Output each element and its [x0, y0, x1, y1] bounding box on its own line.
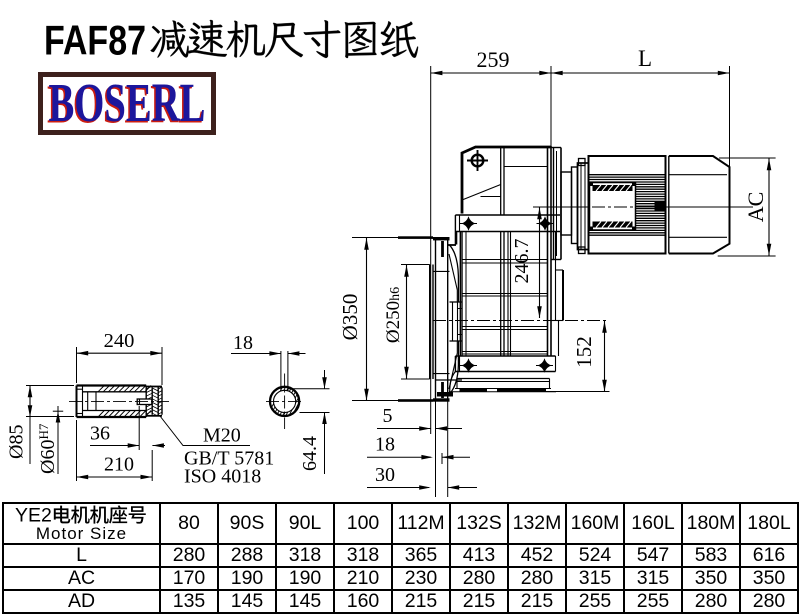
svg-text:210: 210	[104, 454, 134, 476]
svg-text:36: 36	[90, 423, 110, 445]
svg-text:L: L	[638, 46, 652, 71]
svg-text:64.4: 64.4	[299, 436, 321, 471]
svg-text:240: 240	[104, 330, 135, 352]
svg-text:18: 18	[233, 332, 253, 354]
svg-text:30: 30	[375, 464, 395, 486]
svg-text:ISO 4018: ISO 4018	[184, 466, 261, 488]
svg-text:M20: M20	[203, 425, 241, 447]
svg-text:5: 5	[383, 405, 393, 427]
svg-text:18: 18	[375, 434, 395, 456]
svg-text:Ø350: Ø350	[338, 294, 362, 341]
svg-text:Ø250h6: Ø250h6	[383, 287, 404, 343]
svg-text:YE2: YE2	[15, 505, 52, 525]
svg-text:259: 259	[477, 47, 510, 72]
svg-text:152: 152	[572, 336, 596, 368]
svg-text:Ø60H7: Ø60H7	[36, 423, 59, 474]
svg-text:246.7: 246.7	[511, 239, 533, 284]
svg-text:Ø85: Ø85	[6, 425, 28, 459]
